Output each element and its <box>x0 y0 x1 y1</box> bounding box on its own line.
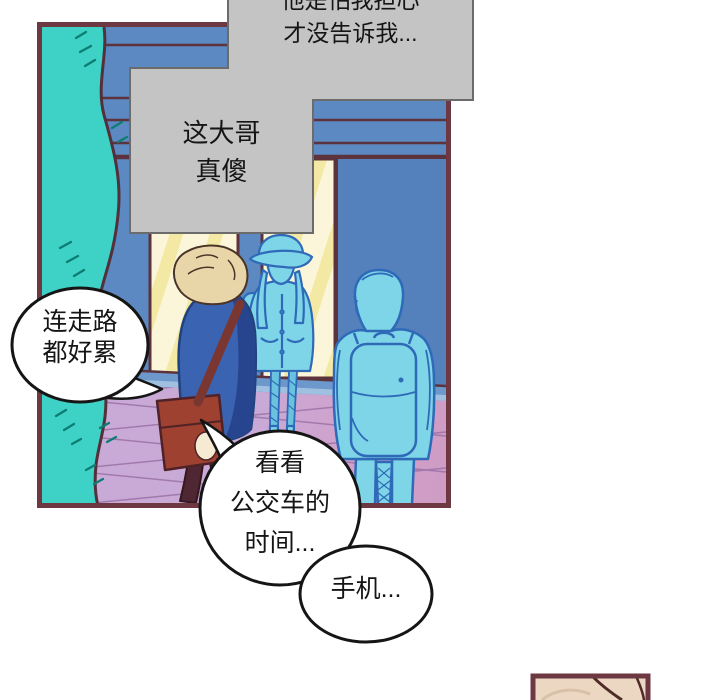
backpack <box>351 344 416 456</box>
next-panel-peek <box>533 676 648 700</box>
speech-bubble-phone <box>300 546 432 642</box>
comic-artwork <box>0 0 720 700</box>
comic-page: 他是怕我担心 才没告诉我... 这大哥 真傻 连走路 都好累 看看 公交车的 时… <box>0 0 720 700</box>
speech-bubble-left <box>12 288 148 402</box>
blond-hair <box>174 245 248 304</box>
